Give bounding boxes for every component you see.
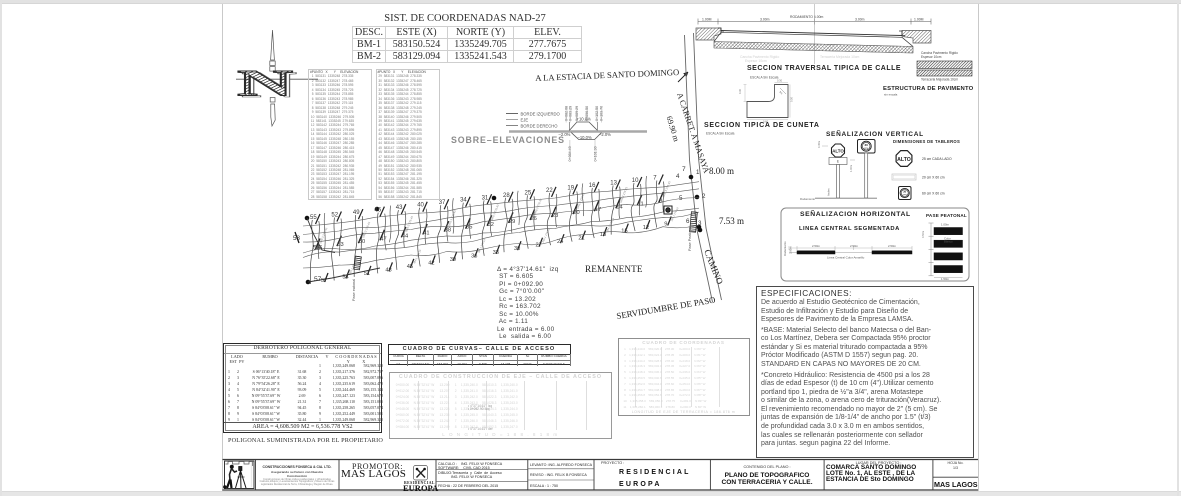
svg-text:23: 23 (552, 213, 558, 219)
svg-text:16: 16 (589, 183, 596, 189)
svg-text:Terraceria Mejorada 10cm: Terraceria Mejorada 10cm (921, 78, 958, 82)
svg-text:1.00M: 1.00M (702, 17, 712, 21)
svg-text:30: 30 (514, 246, 520, 252)
svg-text:3%: 3% (778, 90, 784, 96)
svg-text:57: 57 (321, 278, 327, 284)
svg-text:3.00m: 3.00m (789, 246, 793, 254)
svg-text:37: 37 (439, 200, 446, 206)
svg-text:0.30: 0.30 (738, 88, 742, 94)
svg-text:52: 52 (331, 213, 338, 219)
svg-text:32: 32 (488, 222, 494, 228)
svg-text:sin escala: sin escala (884, 93, 898, 97)
svg-text:19: 19 (567, 185, 574, 191)
svg-text:30: 30 (903, 190, 907, 194)
svg-text:Linea Central Color Amarillo: Linea Central Color Amarillo (827, 255, 865, 259)
svg-text:46: 46 (374, 208, 381, 214)
svg-text:EJE: EJE (521, 117, 529, 122)
svg-text:27: 27 (536, 243, 542, 249)
svg-text:54: 54 (342, 275, 348, 281)
svg-text:50: 50 (359, 239, 365, 245)
svg-text:47: 47 (380, 236, 386, 242)
svg-text:34: 34 (460, 198, 467, 204)
svg-text:45: 45 (407, 264, 413, 270)
svg-text:25: 25 (525, 190, 532, 196)
svg-text:21: 21 (578, 236, 584, 242)
svg-text:53: 53 (337, 242, 343, 248)
svg-text:0+084.49: 0+084.49 (568, 146, 572, 161)
svg-text:31: 31 (482, 195, 489, 201)
svg-text:20: 20 (573, 210, 579, 216)
svg-text:60 cm X 60 cm: 60 cm X 60 cm (922, 192, 945, 196)
svg-text:28: 28 (503, 193, 510, 199)
svg-text:ALTO: ALTO (897, 157, 911, 163)
svg-text:11: 11 (638, 201, 644, 207)
svg-text:ESCALA Sin Escala: ESCALA Sin Escala (706, 132, 735, 136)
svg-text:43: 43 (396, 205, 403, 211)
svg-text:BORDE IZQUIERDO: BORDE IZQUIERDO (521, 111, 561, 116)
svg-text:6: 6 (686, 218, 690, 225)
svg-text:41: 41 (423, 231, 429, 237)
svg-text:8: 8 (659, 199, 662, 205)
svg-text:KPH: KPH (903, 195, 908, 197)
svg-text:0.30: 0.30 (777, 78, 783, 82)
svg-text:Pase Peatonal: Pase Peatonal (688, 226, 692, 251)
svg-text:ALTO: ALTO (832, 149, 844, 154)
svg-text:3.00m: 3.00m (760, 17, 770, 21)
svg-text:1: 1 (696, 169, 700, 176)
svg-text:384.1 276.19: 384.1 276.19 (605, 217, 615, 233)
svg-text:Rodamiento: Rodamiento (800, 197, 816, 201)
svg-text:KPH: KPH (864, 148, 869, 150)
svg-text:RODAMIENTO 6.00m: RODAMIENTO 6.00m (790, 15, 823, 19)
svg-text:Anden: Anden (827, 188, 831, 196)
svg-text:CAMINO: CAMINO (702, 248, 725, 286)
svg-text:2.50m: 2.50m (888, 244, 897, 248)
svg-text:2.50m: 2.50m (812, 244, 821, 248)
svg-text:0+101.30: 0+101.30 (593, 146, 597, 161)
svg-text:35: 35 (466, 225, 472, 231)
svg-text:56: 56 (316, 245, 322, 251)
svg-text:30: 30 (865, 143, 869, 147)
svg-text:39: 39 (450, 257, 456, 263)
svg-text:26: 26 (531, 216, 537, 222)
svg-text:44: 44 (402, 233, 408, 239)
svg-text:Terraceria Mejorada 10cm: Terraceria Mejorada 10cm (820, 55, 860, 59)
svg-text:–2.0%: –2.0% (599, 132, 611, 137)
svg-text:BORDE DERECHO: BORDE DERECHO (521, 123, 559, 128)
svg-text:1.00m: 1.00m (941, 223, 950, 227)
svg-text:4: 4 (676, 173, 680, 180)
svg-text:29: 29 (509, 219, 515, 225)
svg-text:38: 38 (445, 228, 451, 234)
svg-text:Pase eatonal: Pase eatonal (352, 279, 356, 301)
svg-text:24: 24 (557, 239, 563, 245)
svg-text:ESCALA Sin Escala: ESCALA Sin Escala (750, 76, 779, 80)
svg-text:Rodamiento: Rodamiento (783, 241, 787, 256)
svg-text:2.50m: 2.50m (850, 244, 859, 248)
svg-text:51: 51 (364, 271, 370, 277)
svg-text:14: 14 (616, 204, 622, 210)
svg-text:0.50m: 0.50m (921, 231, 925, 238)
svg-text:–10.0%: –10.0% (578, 135, 592, 140)
svg-text:Blanco: Blanco (944, 239, 953, 243)
svg-text:1.00M: 1.00M (914, 17, 924, 21)
svg-text:384.1 276.19: 384.1 276.19 (412, 248, 422, 264)
svg-text:12: 12 (643, 225, 649, 231)
svg-text:22: 22 (546, 188, 553, 194)
svg-text:17: 17 (595, 207, 601, 213)
svg-text:18: 18 (600, 232, 606, 238)
svg-text:48: 48 (385, 267, 391, 273)
svg-text:42: 42 (428, 260, 434, 266)
svg-text:13: 13 (610, 181, 617, 187)
svg-text:9: 9 (664, 222, 667, 228)
svg-text:55: 55 (310, 215, 317, 221)
svg-text:3.00m: 3.00m (855, 17, 865, 21)
svg-text:25 cm CADA LADO: 25 cm CADA LADO (922, 157, 952, 161)
svg-text:40: 40 (417, 203, 424, 209)
svg-text:69.90 m: 69.90 m (665, 115, 682, 143)
svg-text:49: 49 (353, 210, 360, 216)
svg-text:20 cm X 60 cm: 20 cm X 60 cm (922, 175, 945, 179)
svg-text:7: 7 (682, 166, 686, 173)
svg-text:N: N (237, 63, 293, 104)
svg-text:SR8.3 278.43: SR8.3 278.43 (661, 180, 671, 198)
svg-text:1.00m: 1.00m (849, 165, 853, 172)
svg-text:0.50: 0.50 (790, 96, 794, 102)
svg-text:36: 36 (471, 253, 477, 259)
svg-text:SERVIDUMBRE DE PASO: SERVIDUMBRE DE PASO (616, 295, 716, 321)
svg-text:Espesor 10cm: Espesor 10cm (745, 59, 767, 63)
svg-text:0.45m: 0.45m (817, 141, 821, 148)
svg-text:15: 15 (621, 229, 627, 235)
svg-text:2: 2 (702, 193, 706, 200)
svg-text:Espesor 10cm: Espesor 10cm (921, 55, 942, 59)
svg-text:33: 33 (493, 250, 499, 256)
svg-text:10: 10 (632, 178, 639, 184)
